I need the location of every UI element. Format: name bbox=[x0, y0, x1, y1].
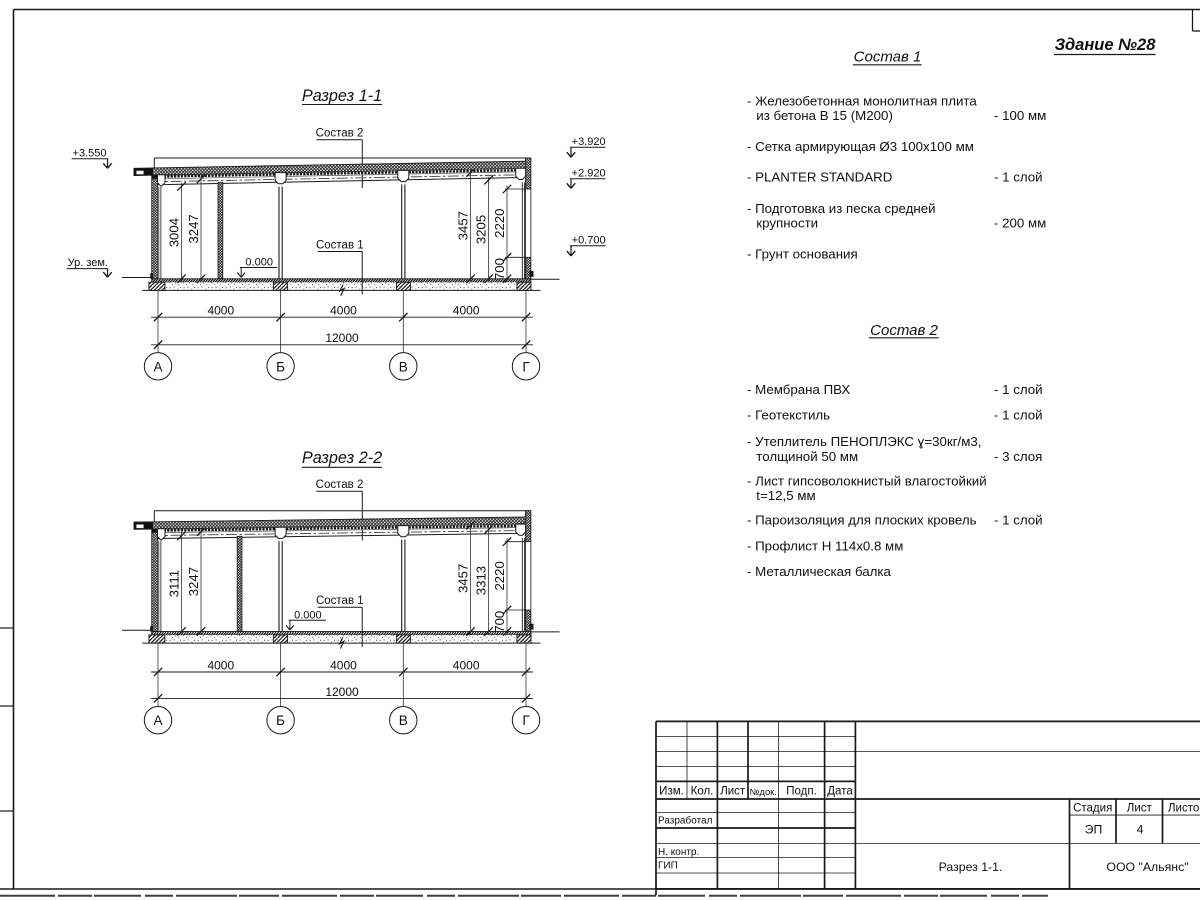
svg-text:+3.550: +3.550 bbox=[73, 147, 107, 159]
svg-text:- Пароизоляция для плоских кро: - Пароизоляция для плоских кровель bbox=[747, 513, 977, 528]
svg-text:3247: 3247 bbox=[186, 567, 201, 596]
svg-text:3313: 3313 bbox=[474, 566, 489, 595]
svg-text:- Утеплитель ПЕНОПЛЭКС ɣ=30кг/: - Утеплитель ПЕНОПЛЭКС ɣ=30кг/м3, bbox=[747, 434, 981, 449]
svg-text:3457: 3457 bbox=[456, 211, 471, 240]
svg-text:- 1 слой: - 1 слой bbox=[994, 408, 1043, 423]
svg-text:2220: 2220 bbox=[492, 561, 507, 590]
svg-text:Состав 2: Состав 2 bbox=[870, 322, 938, 339]
svg-text:3004: 3004 bbox=[167, 218, 182, 247]
svg-text:Состав 2: Состав 2 bbox=[316, 128, 364, 140]
svg-text:ГИП: ГИП bbox=[658, 861, 678, 872]
svg-text:Состав 2: Состав 2 bbox=[316, 479, 364, 491]
svg-text:Изм.: Изм. bbox=[659, 786, 684, 798]
svg-text:Разрез 1-1: Разрез 1-1 bbox=[302, 87, 382, 105]
svg-text:А: А bbox=[153, 359, 162, 374]
svg-text:ЭП: ЭП bbox=[1085, 823, 1103, 837]
svg-text:- Профлист Н 114х0.8 мм: - Профлист Н 114х0.8 мм bbox=[747, 539, 903, 554]
svg-text:- 1 слой: - 1 слой bbox=[994, 170, 1043, 185]
svg-text:- 1 слой: - 1 слой bbox=[994, 513, 1043, 528]
svg-text:Лист: Лист bbox=[720, 786, 746, 798]
svg-text:- Сетка армирующая Ø3 100х100: - Сетка армирующая Ø3 100х100 мм bbox=[747, 139, 974, 154]
svg-text:4000: 4000 bbox=[453, 658, 480, 672]
svg-text:Лист: Лист bbox=[1127, 802, 1153, 814]
svg-text:3457: 3457 bbox=[456, 564, 471, 593]
svg-text:толщиной 50 мм: толщиной 50 мм bbox=[756, 449, 858, 464]
svg-text:Б: Б bbox=[276, 359, 285, 374]
svg-text:Разрез 2-2: Разрез 2-2 bbox=[302, 449, 382, 467]
svg-text:4000: 4000 bbox=[207, 658, 234, 672]
svg-text:Листов: Листов bbox=[1168, 802, 1200, 814]
svg-text:Н. контр.: Н. контр. bbox=[658, 847, 699, 858]
svg-text:t=12,5 мм: t=12,5 мм bbox=[756, 488, 815, 503]
svg-text:А: А bbox=[153, 713, 162, 728]
svg-text:- Железобетонная монолитная п: - Железобетонная монолитная плита bbox=[747, 94, 977, 109]
svg-text:- Металлическая балка: - Металлическая балка bbox=[747, 564, 892, 579]
svg-text:+0.700: +0.700 bbox=[572, 234, 606, 246]
svg-text:12000: 12000 bbox=[325, 331, 359, 345]
svg-text:Состав 1: Состав 1 bbox=[316, 595, 364, 607]
svg-text:Ур. зем.: Ур. зем. bbox=[68, 257, 108, 269]
svg-text:В: В bbox=[399, 359, 408, 374]
svg-text:- Геотекстиль: - Геотекстиль bbox=[747, 408, 830, 423]
svg-text:Кол.: Кол. bbox=[691, 786, 714, 798]
svg-text:700: 700 bbox=[492, 611, 507, 633]
svg-text:0.000: 0.000 bbox=[294, 609, 322, 621]
svg-text:Г: Г bbox=[522, 359, 530, 374]
svg-text:700: 700 bbox=[492, 258, 507, 280]
svg-text:В: В bbox=[399, 713, 408, 728]
svg-text:3111: 3111 bbox=[167, 570, 182, 597]
svg-text:- 200 мм: - 200 мм bbox=[994, 216, 1046, 231]
svg-text:- Мембрана ПВХ: - Мембрана ПВХ bbox=[747, 382, 850, 397]
svg-text:Б: Б bbox=[276, 713, 285, 728]
svg-text:крупности: крупности bbox=[756, 216, 818, 231]
svg-text:Разрез 1-1.: Разрез 1-1. bbox=[939, 860, 1003, 874]
svg-text:- Подготовка из песка средней: - Подготовка из песка средней bbox=[747, 201, 936, 216]
svg-text:Дата: Дата bbox=[827, 786, 853, 798]
svg-text:+2.920: +2.920 bbox=[572, 167, 606, 179]
svg-text:Состав 1: Состав 1 bbox=[854, 49, 922, 66]
svg-text:Подп.: Подп. bbox=[786, 786, 817, 798]
svg-text:3247: 3247 bbox=[186, 214, 201, 243]
svg-text:Стадия: Стадия bbox=[1073, 802, 1112, 814]
svg-text:- Грунт основания: - Грунт основания bbox=[747, 246, 858, 261]
svg-text:Состав 1: Состав 1 bbox=[316, 239, 364, 251]
svg-text:+3.920: +3.920 bbox=[572, 136, 606, 148]
svg-text:из бетона В 15 (М200): из бетона В 15 (М200) bbox=[756, 108, 893, 123]
svg-text:- Лист гипсоволокнистый влагос: - Лист гипсоволокнистый влагостойкий bbox=[747, 474, 987, 489]
svg-text:- PLANTER STANDARD: - PLANTER STANDARD bbox=[747, 170, 892, 185]
svg-text:Разработал: Разработал bbox=[658, 814, 713, 826]
svg-text:2220: 2220 bbox=[492, 208, 507, 237]
svg-text:4000: 4000 bbox=[330, 304, 357, 318]
svg-text:0.000: 0.000 bbox=[245, 257, 273, 269]
svg-text:- 1 слой: - 1 слой bbox=[994, 382, 1043, 397]
svg-text:4000: 4000 bbox=[330, 658, 357, 672]
svg-text:№док.: №док. bbox=[750, 787, 777, 797]
svg-text:Здание №28: Здание №28 bbox=[1055, 36, 1157, 54]
svg-text:ООО "Альянс": ООО "Альянс" bbox=[1106, 860, 1188, 874]
svg-text:4000: 4000 bbox=[453, 304, 480, 318]
svg-text:- 3 слоя: - 3 слоя bbox=[994, 449, 1042, 464]
svg-text:12000: 12000 bbox=[325, 685, 359, 699]
svg-text:- 100 мм: - 100 мм bbox=[994, 108, 1046, 123]
svg-text:Г: Г bbox=[522, 713, 530, 728]
svg-text:4000: 4000 bbox=[207, 304, 234, 318]
svg-text:4: 4 bbox=[1137, 823, 1144, 837]
svg-text:3205: 3205 bbox=[474, 215, 489, 244]
